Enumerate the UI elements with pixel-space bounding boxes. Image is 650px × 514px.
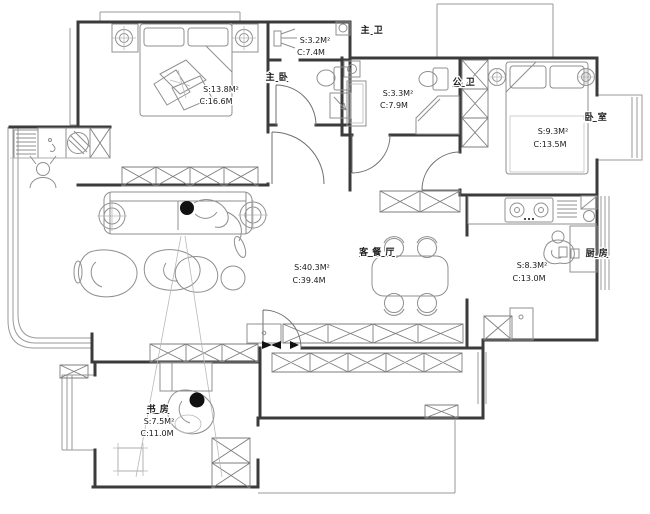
living-dining-area-label: S:40.3M² <box>294 263 330 272</box>
kitchen-name-label: 厨 房 <box>586 247 609 259</box>
bedroom-area-label: S:9.3M² <box>538 127 569 136</box>
public-bathroom-area-label: S:3.3M² <box>383 89 414 98</box>
person-figure <box>190 393 205 408</box>
floor-plan-canvas: 主 卫 S:3.2M² C:7.4M 主 卧 S:13.8M² C:16.6M … <box>0 0 650 514</box>
public-bathroom-circulation-label: C:7.9M <box>380 101 408 110</box>
bedroom-circulation-label: C:13.5M <box>534 140 567 149</box>
living-dining-circulation-label: C:39.4M <box>293 276 326 285</box>
kitchen-circulation-label: C:13.0M <box>513 274 546 283</box>
master-bedroom-name-label: 主 卧 <box>266 71 289 83</box>
study-area-label: S:7.5M² <box>144 417 175 426</box>
floor-plan-page: 主 卫 S:3.2M² C:7.4M 主 卧 S:13.8M² C:16.6M … <box>0 0 650 514</box>
master-bathroom-circulation-label: C:7.4M <box>297 48 325 57</box>
master-bedroom-circulation-label: C:16.6M <box>200 97 233 106</box>
public-bathroom-name-label: 公 卫 <box>453 77 476 88</box>
living-dining-name-label: 客 餐 厅 <box>358 246 395 258</box>
study-circulation-label: C:11.0M <box>141 429 174 438</box>
person-figure <box>180 201 194 215</box>
kitchen-area-label: S:8.3M² <box>517 261 548 270</box>
canvas-background <box>0 0 650 514</box>
master-bathroom-area-label: S:3.2M² <box>300 36 331 45</box>
study-name-label: 书 房 <box>147 403 170 415</box>
master-bathroom-name-label: 主 卫 <box>361 24 384 36</box>
bedroom-name-label: 卧 室 <box>585 111 608 123</box>
master-bedroom-area-label: S:13.8M² <box>203 85 239 94</box>
